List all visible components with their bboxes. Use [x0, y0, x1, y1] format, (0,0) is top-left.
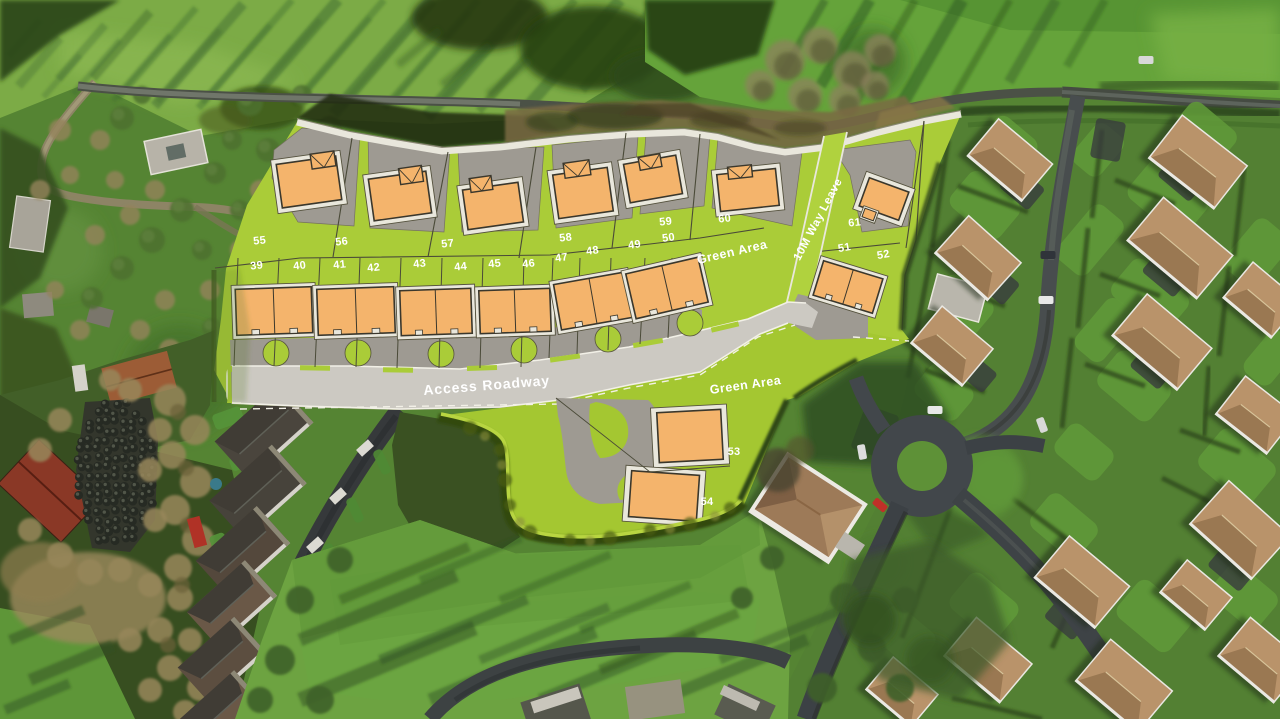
svg-text:58: 58 [559, 231, 573, 244]
svg-text:59: 59 [659, 215, 673, 228]
svg-text:51: 51 [837, 241, 852, 255]
svg-text:43: 43 [413, 257, 427, 270]
svg-text:56: 56 [335, 235, 349, 248]
svg-text:50: 50 [661, 231, 675, 245]
svg-text:39: 39 [250, 259, 264, 272]
svg-text:41: 41 [333, 258, 347, 271]
svg-text:42: 42 [367, 261, 381, 274]
svg-text:52: 52 [876, 248, 891, 262]
svg-text:53: 53 [728, 446, 741, 458]
svg-text:54: 54 [701, 496, 714, 508]
svg-text:40: 40 [293, 259, 307, 272]
svg-text:48: 48 [585, 244, 599, 258]
svg-text:61: 61 [848, 216, 862, 229]
svg-text:60: 60 [718, 212, 732, 225]
svg-text:44: 44 [454, 260, 469, 273]
svg-text:55: 55 [253, 234, 267, 247]
svg-text:49: 49 [627, 238, 641, 252]
svg-text:45: 45 [488, 257, 502, 270]
svg-text:57: 57 [441, 237, 455, 250]
svg-text:46: 46 [522, 257, 536, 270]
svg-text:47: 47 [554, 251, 568, 265]
